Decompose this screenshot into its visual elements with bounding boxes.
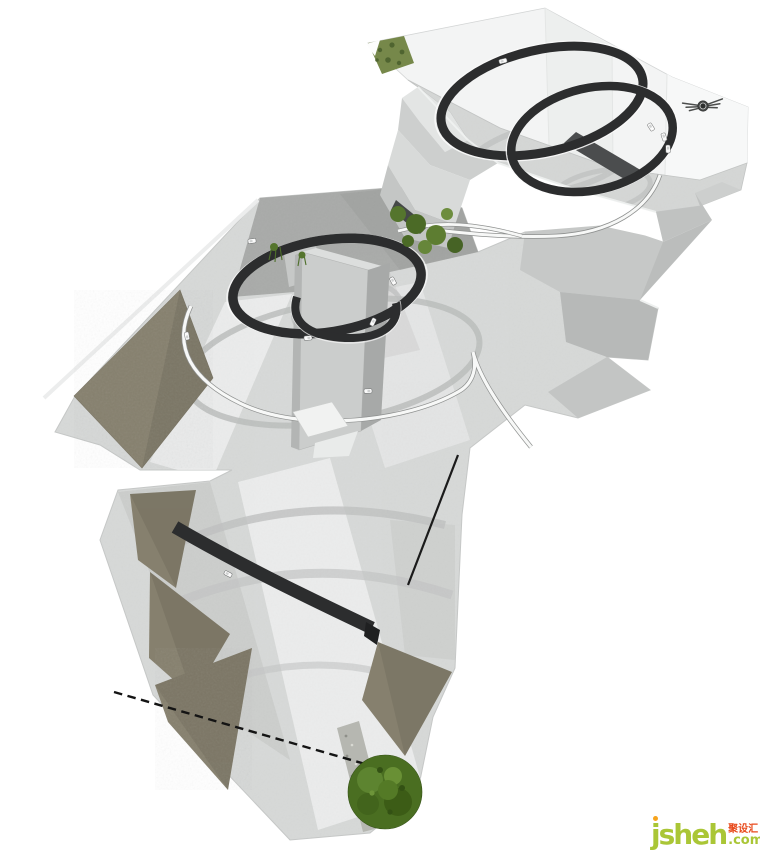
watermark-j-dot	[653, 816, 658, 821]
render-canvas: jsheh 聚设汇 .com	[0, 0, 760, 857]
car	[248, 238, 257, 243]
architectural-model-render	[0, 0, 760, 857]
watermark-brand: jsheh	[651, 822, 726, 848]
tree	[348, 755, 422, 829]
hanging-plant-blob	[299, 252, 306, 259]
car	[666, 145, 671, 153]
watermark-suffix: .com	[728, 835, 760, 847]
car	[364, 389, 372, 394]
hanging-plant-blob	[270, 243, 278, 251]
car	[304, 336, 312, 341]
watermark: jsheh 聚设汇 .com	[651, 814, 759, 848]
